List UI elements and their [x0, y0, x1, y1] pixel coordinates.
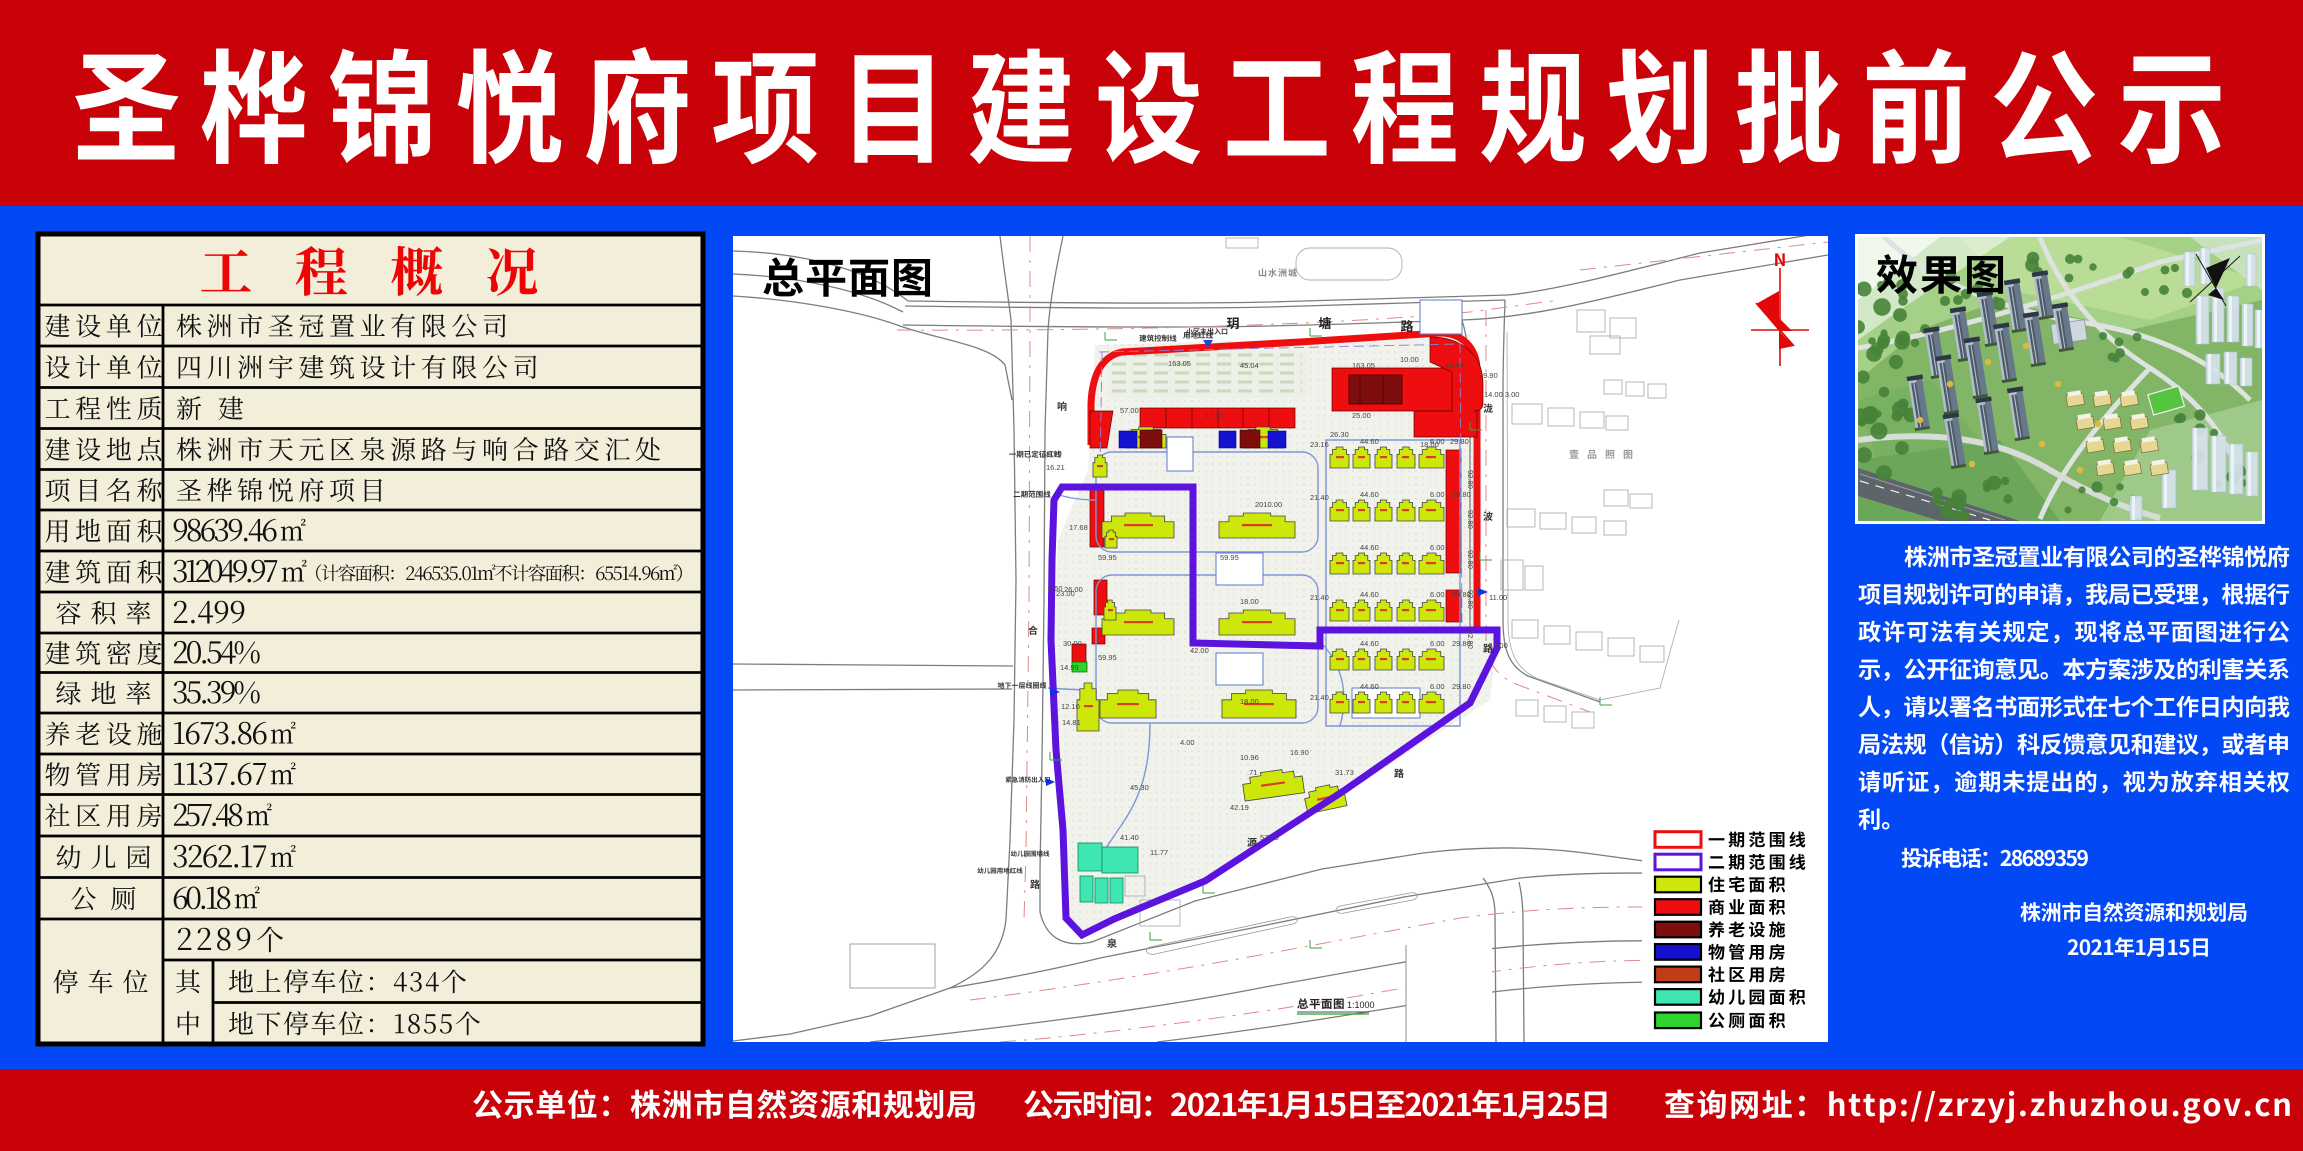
svg-text:21.40: 21.40 — [1310, 493, 1329, 502]
svg-text:11.00: 11.00 — [1489, 593, 1507, 602]
svg-text:29.80: 29.80 — [1450, 437, 1469, 446]
svg-text:92.80: 92.80 — [1466, 590, 1475, 609]
svg-text:18.00: 18.00 — [1240, 597, 1259, 606]
svg-text:10.96: 10.96 — [1240, 753, 1259, 762]
svg-text:17.68: 17.68 — [1069, 523, 1088, 532]
svg-text:41.40: 41.40 — [1120, 833, 1139, 842]
svg-text:26.30: 26.30 — [1330, 430, 1349, 439]
svg-text:92.80: 92.80 — [1466, 550, 1475, 569]
svg-text:14.00 3.00: 14.00 3.00 — [1484, 390, 1519, 399]
svg-text:45.30: 45.30 — [1130, 783, 1149, 792]
svg-text:1:1000: 1:1000 — [1347, 1000, 1375, 1010]
svg-text:16.21: 16.21 — [1046, 463, 1065, 472]
svg-text:19.90: 19.90 — [1479, 371, 1498, 380]
svg-text:25.00: 25.00 — [1352, 411, 1371, 420]
svg-text:29.80: 29.80 — [1452, 682, 1471, 691]
svg-text:6.00: 6.00 — [1430, 639, 1445, 648]
svg-text:30.00: 30.00 — [1063, 639, 1082, 648]
svg-text:4.00: 4.00 — [1180, 738, 1195, 747]
svg-text:14.99: 14.99 — [1060, 663, 1079, 672]
svg-text:57.00: 57.00 — [1120, 406, 1139, 415]
svg-text:6.00: 6.00 — [1430, 543, 1445, 552]
svg-text:44.60: 44.60 — [1360, 639, 1379, 648]
svg-text:92.80: 92.80 — [1466, 510, 1475, 529]
svg-text:44.60: 44.60 — [1360, 490, 1379, 499]
svg-text:14.81: 14.81 — [1062, 718, 1081, 727]
svg-text:59.95: 59.95 — [1098, 553, 1117, 562]
svg-text:44.60: 44.60 — [1360, 543, 1379, 552]
svg-text:42.19: 42.19 — [1230, 803, 1249, 812]
svg-text:11.77: 11.77 — [1150, 848, 1168, 857]
svg-text:6.00: 6.00 — [1430, 590, 1445, 599]
svg-text:18.00: 18.00 — [1240, 697, 1259, 706]
svg-text:44.80: 44.80 — [1445, 361, 1464, 370]
svg-text:18.00: 18.00 — [1420, 440, 1439, 449]
svg-text:13.00: 13.00 — [1489, 641, 1508, 650]
svg-text:44.60: 44.60 — [1360, 437, 1379, 446]
svg-text:44.60: 44.60 — [1360, 682, 1379, 691]
svg-text:29.80: 29.80 — [1452, 490, 1471, 499]
svg-text:14.90: 14.90 — [1043, 449, 1062, 458]
svg-text:21.40: 21.40 — [1310, 693, 1329, 702]
svg-text:59.95: 59.95 — [1220, 553, 1239, 562]
svg-text:92.80: 92.80 — [1466, 630, 1475, 649]
svg-text:6.00: 6.00 — [1430, 490, 1445, 499]
svg-text:2010.00: 2010.00 — [1255, 500, 1282, 509]
svg-text:57.00: 57.00 — [1260, 833, 1279, 842]
svg-text:23.16: 23.16 — [1310, 440, 1329, 449]
svg-text:26.00: 26.00 — [1064, 585, 1083, 594]
svg-text:45.04: 45.04 — [1240, 361, 1259, 370]
svg-text:163.05: 163.05 — [1352, 361, 1375, 370]
svg-text:92.80: 92.80 — [1466, 470, 1475, 489]
svg-text:42.00: 42.00 — [1190, 646, 1209, 655]
svg-text:6.00: 6.00 — [1430, 682, 1445, 691]
svg-text:17.20: 17.20 — [1205, 411, 1224, 420]
svg-text:16.90: 16.90 — [1290, 748, 1309, 757]
svg-text:10.00: 10.00 — [1400, 355, 1419, 364]
svg-text:31.73: 31.73 — [1335, 768, 1354, 777]
svg-text:163.05: 163.05 — [1168, 359, 1191, 368]
svg-text:59.95: 59.95 — [1098, 653, 1117, 662]
svg-text:44.60: 44.60 — [1360, 590, 1379, 599]
svg-text:.71: .71 — [1247, 768, 1257, 777]
svg-text:21.40: 21.40 — [1310, 593, 1329, 602]
svg-text:12.10: 12.10 — [1061, 702, 1080, 711]
svg-text:2.50: 2.50 — [1048, 584, 1063, 593]
